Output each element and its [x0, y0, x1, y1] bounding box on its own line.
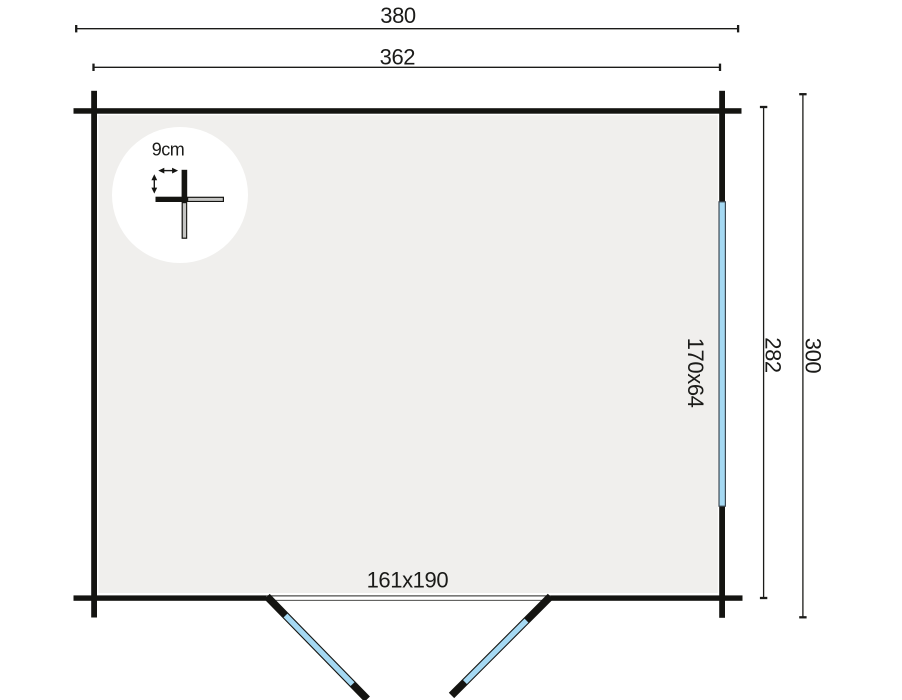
svg-text:282: 282	[761, 337, 786, 373]
svg-text:170x64: 170x64	[683, 338, 708, 408]
svg-text:300: 300	[801, 338, 826, 374]
svg-text:9cm: 9cm	[152, 139, 185, 159]
svg-text:380: 380	[380, 3, 416, 28]
svg-text:362: 362	[380, 45, 416, 70]
svg-text:161x190: 161x190	[367, 568, 449, 593]
